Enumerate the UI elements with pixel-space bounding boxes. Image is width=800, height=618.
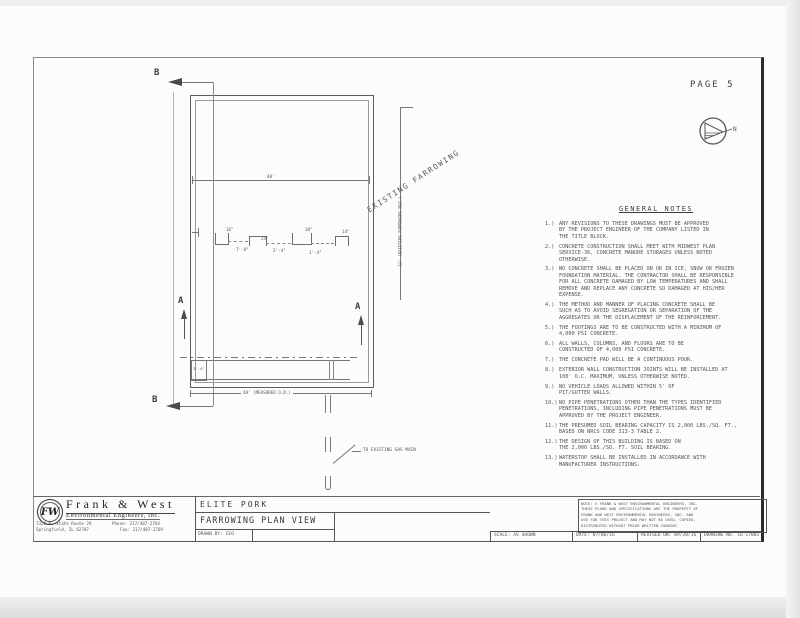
- detail-dimension: 14": [342, 229, 350, 234]
- company-fax: Fax: 217/487-2769: [120, 527, 163, 532]
- dimension-tick: [192, 232, 199, 233]
- titleblock-divider: [490, 531, 491, 541]
- scale-value: SCALE: AS SHOWN: [494, 533, 536, 538]
- note-text: CONCRETE CONSTRUCTION SHALL MEET WITH MI…: [559, 244, 767, 263]
- bottom-dimension-label: 48' (MEASURED O.D.): [241, 390, 293, 395]
- note-text: NO CONCRETE SHALL BE PLACED ON OR IN ICE…: [559, 266, 767, 298]
- existing-building-tick: [400, 107, 413, 108]
- copyright-disclaimer: NOTE: © FRANK & WEST ENVIRONMENTAL ENGIN…: [578, 499, 767, 533]
- titleblock-divider: [700, 531, 701, 541]
- detail-leader-line: [266, 243, 291, 244]
- project-name: ELITE PORK: [200, 500, 268, 509]
- note-text: THE FOOTINGS ARE TO BE CONSTRUCTED WITH …: [559, 325, 767, 338]
- note-text: THE METHOD AND MANNER OF PLACING CONCRET…: [559, 302, 767, 321]
- note-item: 5.)THE FOOTINGS ARE TO BE CONSTRUCTED WI…: [545, 325, 767, 338]
- company-address-line2: Springfield, IL 62707: [36, 527, 89, 532]
- dimension-tick: [369, 176, 370, 184]
- detail-leader-line: [311, 243, 334, 244]
- section-a-cut-line: [180, 357, 360, 358]
- section-a-line-right: [361, 323, 362, 345]
- note-item: 12.)THE DESIGN OF THIS BUILDING IS BASED…: [545, 439, 767, 452]
- pit-dimension: 3'-4": [193, 366, 204, 371]
- note-number: 7.): [545, 357, 559, 363]
- note-item: 4.)THE METHOD AND MANNER OF PLACING CONC…: [545, 302, 767, 321]
- note-text: WATERSTOP SHALL BE INSTALLED IN ACCORDAN…: [559, 455, 767, 468]
- note-item: 1.)ANY REVISIONS TO THESE DRAWINGS MUST …: [545, 221, 767, 240]
- scan-edge-top: [0, 0, 800, 6]
- note-item: 11.)THE PRESUMED SOIL BEARING CAPACITY I…: [545, 423, 767, 436]
- titleblock-line: [490, 531, 761, 532]
- titleblock-line: [195, 529, 335, 530]
- note-text: ANY REVISIONS TO THESE DRAWINGS MUST BE …: [559, 221, 767, 240]
- section-b-arrow-top: [168, 78, 182, 86]
- detail-dimension: 30": [305, 227, 313, 232]
- note-number: 6.): [545, 341, 559, 354]
- section-b-label-top: B: [154, 68, 159, 78]
- date-value: DATE: 07/06/16: [576, 533, 615, 538]
- note-number: 2.): [545, 244, 559, 263]
- pit-joint-tick: [329, 360, 334, 379]
- note-item: 6.)ALL WALLS, COLUMNS, AND FLOORS ARE TO…: [545, 341, 767, 354]
- note-number: 1.): [545, 221, 559, 240]
- titleblock-divider: [195, 496, 196, 541]
- general-notes: GENERAL NOTES 1.)ANY REVISIONS TO THESE …: [545, 205, 767, 472]
- note-number: 13.): [545, 455, 559, 468]
- sheet-title: FARROWING PLAN VIEW: [200, 516, 316, 526]
- gas-line-segment: [325, 437, 331, 452]
- section-a-label-right: A: [355, 302, 360, 312]
- titleblock-divider: [637, 531, 638, 541]
- titleblock-line: [195, 512, 490, 513]
- revised-value: REVISED ON: 09/28/16: [641, 533, 696, 538]
- scan-edge-right: [786, 0, 800, 618]
- dimension-tick: [371, 390, 372, 397]
- gas-main-label: TO EXISTING GAS MAIN: [363, 448, 416, 453]
- detail-leader-line: [228, 241, 248, 242]
- scan-edge-bottom: [0, 597, 800, 618]
- dimension-tick: [190, 390, 191, 397]
- north-arrow-icon: N: [696, 112, 740, 154]
- note-number: 11.): [545, 423, 559, 436]
- titleblock-divider: [572, 531, 573, 541]
- interior-dimension-line: [192, 180, 370, 181]
- drawing-number: DRAWING NO. 16-17001: [704, 533, 759, 538]
- note-number: 9.): [545, 384, 559, 397]
- section-b-line-bottom: [180, 406, 213, 407]
- overall-width-dimension: 48': [266, 174, 276, 179]
- scanned-drawing-sheet: PAGE 5 N 48' 16" 24" 30" 14" 7'-0" 2'-4"…: [0, 0, 800, 618]
- note-number: 10.): [545, 400, 559, 419]
- drawn-by: DRAWN BY: CEO: [198, 532, 234, 537]
- note-item: 2.)CONCRETE CONSTRUCTION SHALL MEET WITH…: [545, 244, 767, 263]
- titleblock-divider: [334, 512, 335, 541]
- note-number: 12.): [545, 439, 559, 452]
- detail-dimension: 16": [226, 227, 234, 232]
- titleblock-divider: [252, 529, 253, 541]
- note-item: 13.)WATERSTOP SHALL BE INSTALLED IN ACCO…: [545, 455, 767, 468]
- company-subtitle: Environmental Engineers, Inc.: [66, 512, 160, 520]
- page-number: PAGE 5: [690, 80, 735, 90]
- north-label-glyph: N: [733, 126, 737, 133]
- stall-detail-bracket: [292, 233, 312, 245]
- section-b-cut-line: [213, 82, 214, 406]
- note-item: 9.)NO VEHICLE LOADS ALLOWED WITHIN 5' OF…: [545, 384, 767, 397]
- section-a-line-left: [184, 317, 185, 339]
- note-text: THE PRESUMED SOIL BEARING CAPACITY IS 2,…: [559, 423, 767, 436]
- note-text: NO VEHICLE LOADS ALLOWED WITHIN 5' OF PI…: [559, 384, 767, 397]
- stall-detail-bracket: [215, 233, 229, 245]
- note-text: THE CONCRETE PAD WILL BE A CONTINUOUS PO…: [559, 357, 767, 363]
- existing-building-dimension: 11' (EXISTING FARROWING BLD.): [398, 187, 403, 277]
- note-text: EXTERIOR WALL CONSTRUCTION JOINTS WILL B…: [559, 367, 767, 380]
- gas-line-segment: [325, 395, 331, 413]
- note-number: 4.): [545, 302, 559, 321]
- company-phone: Phone: 217/487-2764: [112, 521, 160, 526]
- detail-dimension: 1'-4": [309, 250, 322, 255]
- gas-line-end: [325, 476, 331, 490]
- note-number: 8.): [545, 367, 559, 380]
- section-a-label-left: A: [178, 296, 183, 306]
- note-item: 10.)NO PIPE PENETRATIONS OTHER THAN THE …: [545, 400, 767, 419]
- section-b-label-bottom: B: [152, 395, 157, 405]
- note-text: THE DESIGN OF THIS BUILDING IS BASED ON …: [559, 439, 767, 452]
- detail-dimension: 7'-0": [236, 247, 249, 252]
- company-address-line1: 7328 N. State Route 29: [36, 521, 91, 526]
- note-text: NO PIPE PENETRATIONS OTHER THAN THE TYPE…: [559, 400, 767, 419]
- detail-dimension: 24": [261, 236, 269, 241]
- section-b-line-top: [182, 82, 213, 83]
- general-notes-title: GENERAL NOTES: [545, 205, 767, 213]
- note-item: 8.)EXTERIOR WALL CONSTRUCTION JOINTS WIL…: [545, 367, 767, 380]
- detail-dimension: 2'-4": [273, 248, 286, 253]
- pit-band-top-line: [192, 360, 350, 361]
- extension-line-left: [173, 92, 174, 404]
- note-number: 3.): [545, 266, 559, 298]
- stall-detail-bracket: [335, 236, 349, 246]
- pit-band-bottom-line: [192, 379, 350, 380]
- note-text: ALL WALLS, COLUMNS, AND FLOORS ARE TO BE…: [559, 341, 767, 354]
- note-number: 5.): [545, 325, 559, 338]
- note-item: 7.)THE CONCRETE PAD WILL BE A CONTINUOUS…: [545, 357, 767, 363]
- dimension-tick: [192, 176, 193, 184]
- note-item: 3.)NO CONCRETE SHALL BE PLACED ON OR IN …: [545, 266, 767, 298]
- gas-leader-dash: [352, 451, 361, 452]
